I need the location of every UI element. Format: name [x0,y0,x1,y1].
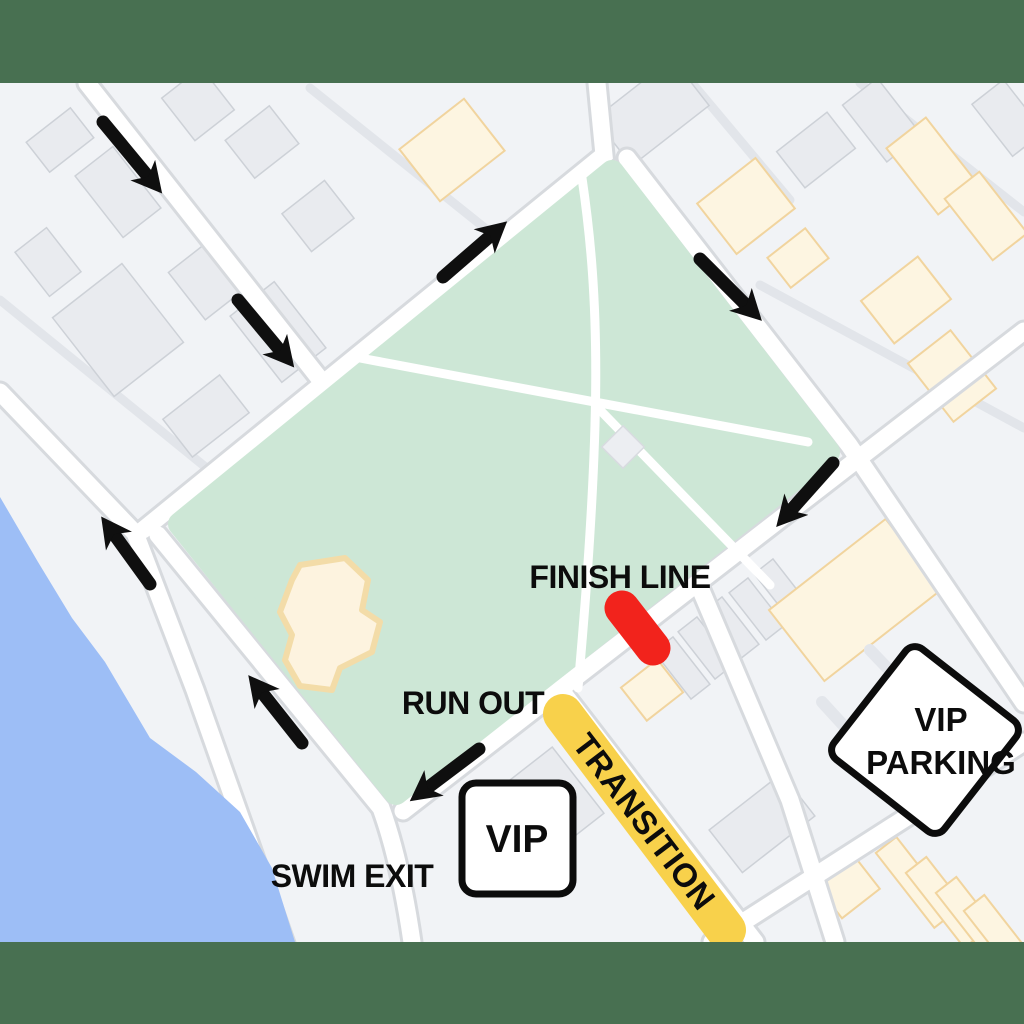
event-course-map: TRANSITION FINISH LINE RUN OUT SWIM EXIT… [0,0,1024,1024]
map-area: TRANSITION FINISH LINE RUN OUT SWIM EXIT… [0,58,1024,986]
frame-band-bottom [0,942,1024,1024]
run-out-label: RUN OUT [402,685,545,721]
vip-box: VIP [462,783,573,894]
finish-line-marker [622,608,653,648]
vip-parking-label-line1: VIP [914,701,967,738]
swim-exit-label: SWIM EXIT [271,858,435,894]
vip-label: VIP [486,818,549,861]
map-svg: TRANSITION FINISH LINE RUN OUT SWIM EXIT… [0,0,1024,1024]
finish-line-label: FINISH LINE [529,559,710,595]
vip-parking-label-line2: PARKING [866,744,1016,781]
frame-band-top [0,0,1024,83]
